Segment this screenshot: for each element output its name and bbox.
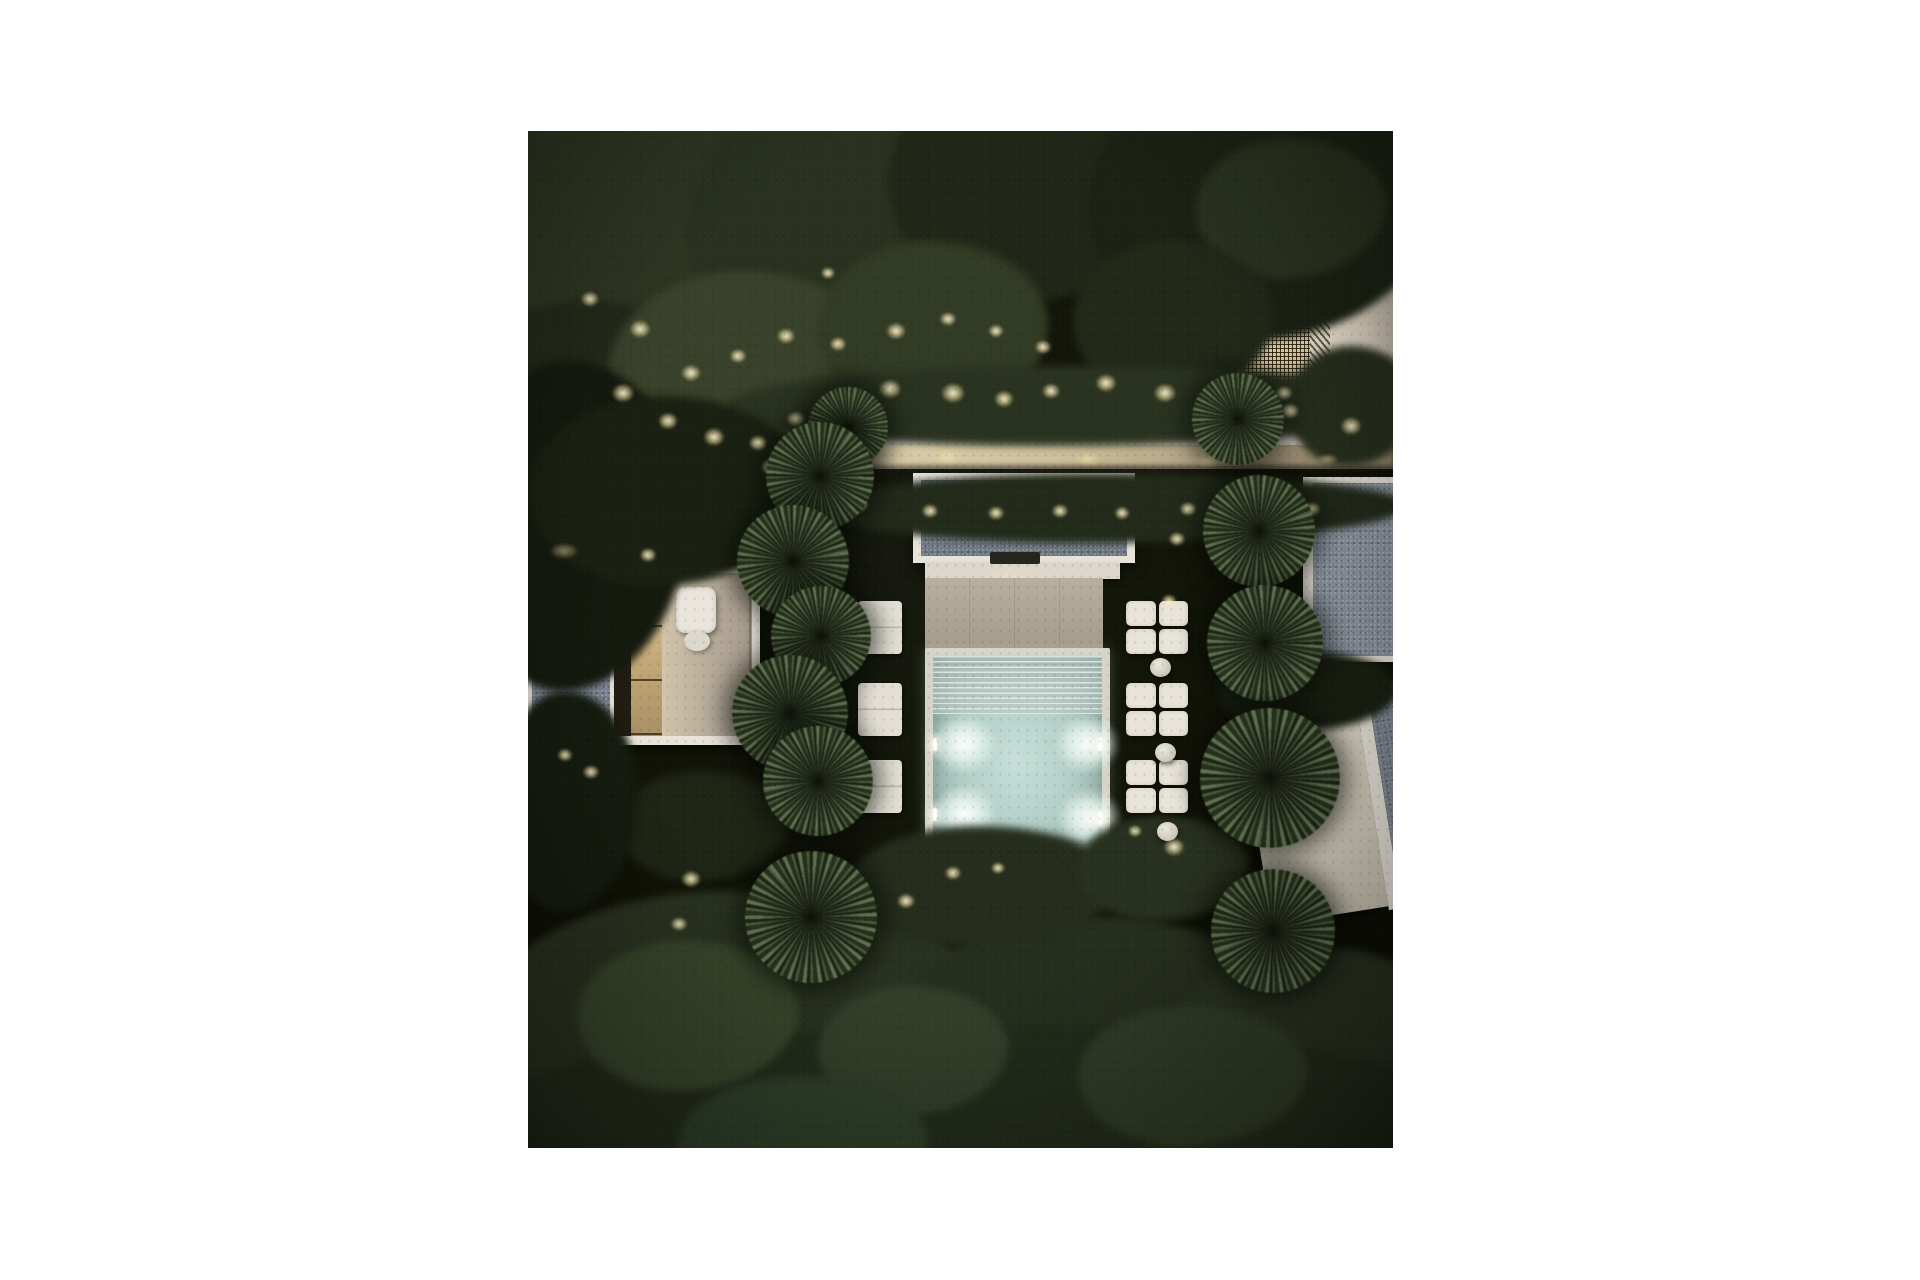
yucca-tree	[1200, 708, 1340, 848]
yucca-tree	[745, 851, 877, 983]
aerial-villa-rendering	[528, 131, 1393, 1148]
yucca-tree	[763, 726, 873, 836]
yucca-tree	[1203, 475, 1315, 587]
yucca-trees-layer	[528, 131, 1393, 1148]
yucca-tree	[1211, 869, 1335, 993]
yucca-tree	[1207, 585, 1323, 701]
yucca-tree	[1192, 373, 1284, 465]
